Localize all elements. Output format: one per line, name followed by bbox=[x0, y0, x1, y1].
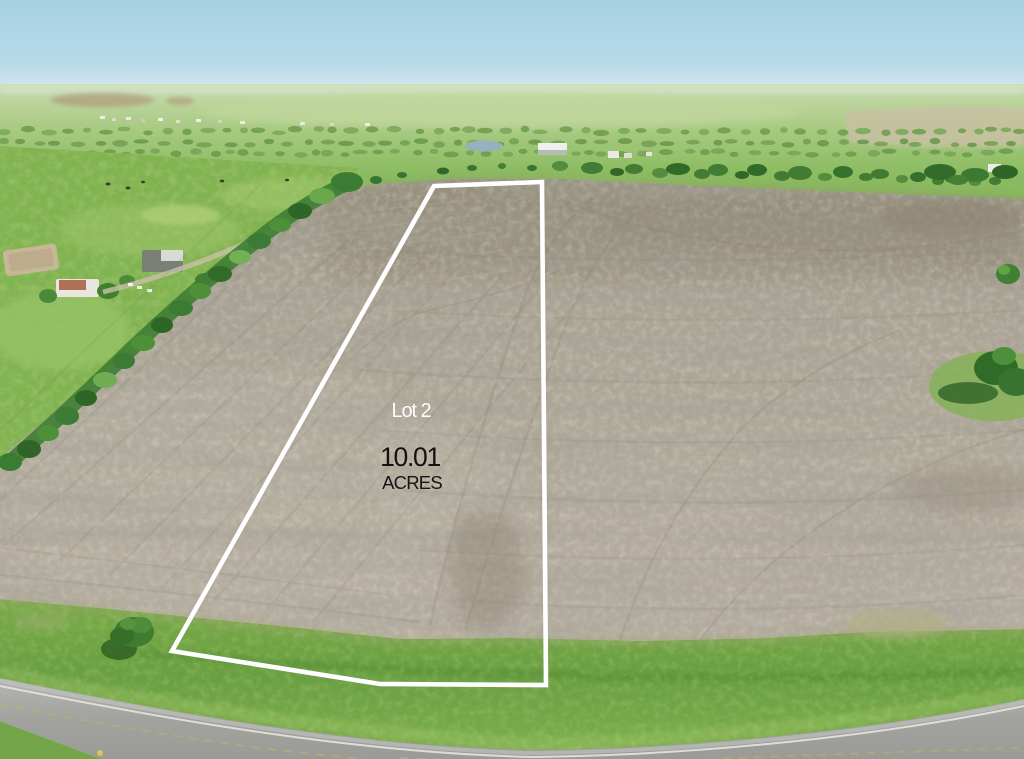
svg-text:Lot 2: Lot 2 bbox=[392, 400, 432, 422]
svg-text:10.01: 10.01 bbox=[380, 442, 440, 472]
svg-text:ACRES: ACRES bbox=[382, 472, 442, 493]
